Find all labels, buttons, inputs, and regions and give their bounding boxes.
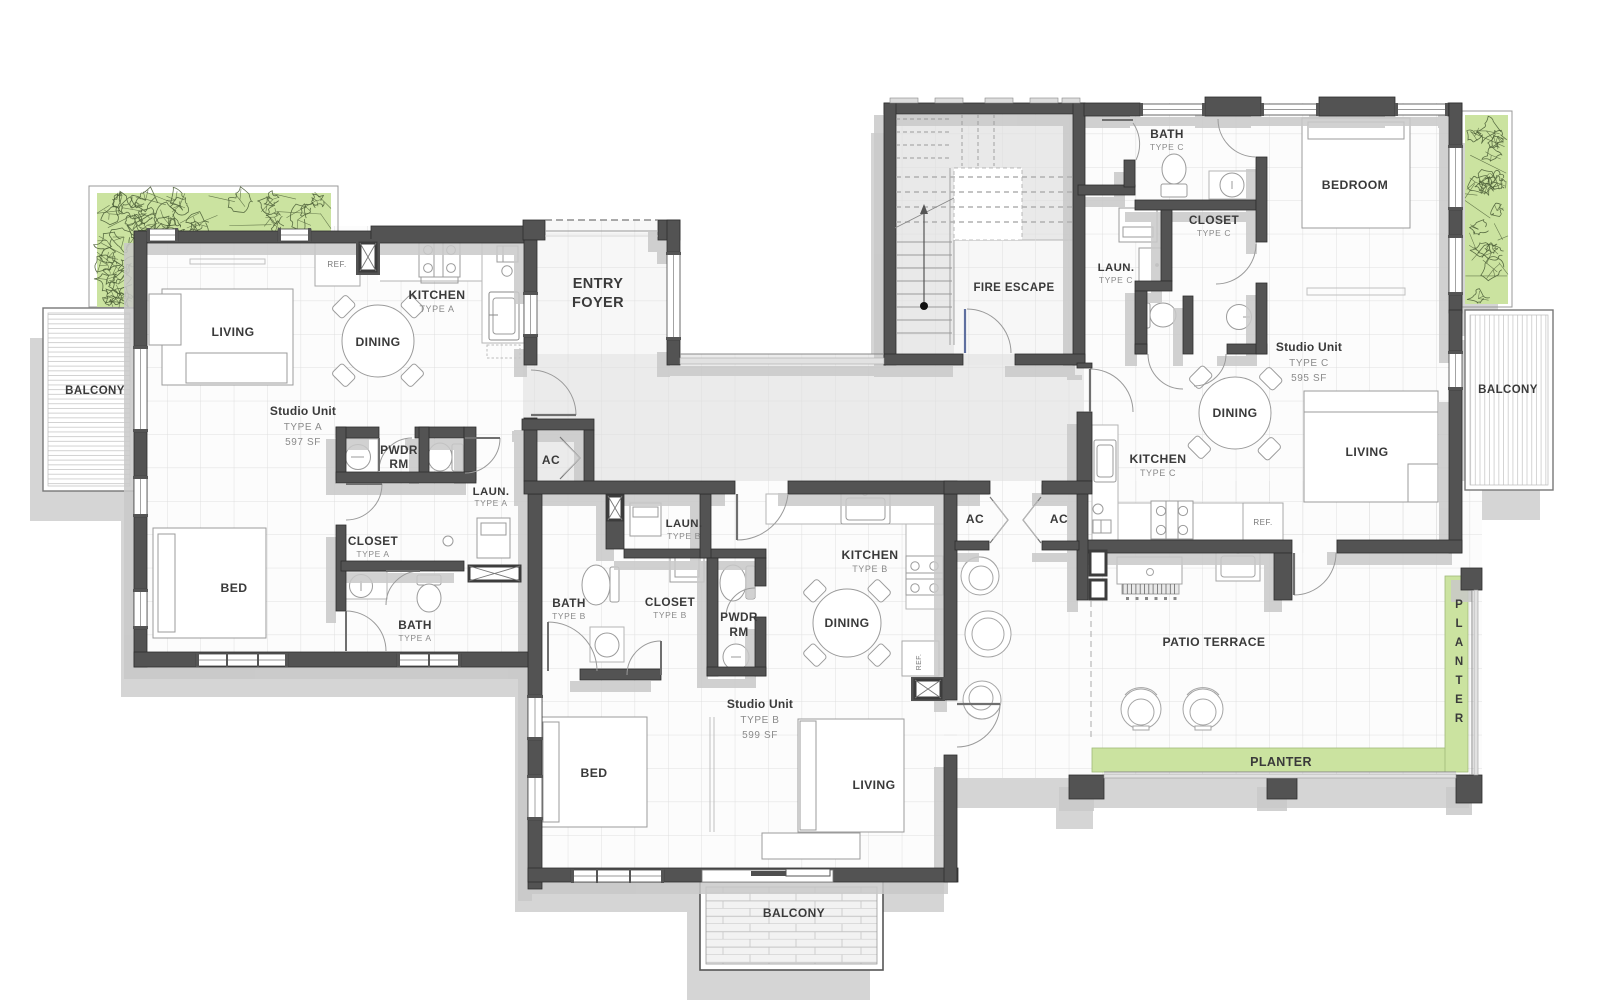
svg-text:PATIO TERRACE: PATIO TERRACE: [1163, 635, 1266, 649]
svg-text:PLANTER: PLANTER: [1250, 755, 1312, 769]
svg-text:TYPE C: TYPE C: [1197, 228, 1231, 238]
svg-text:599 SF: 599 SF: [742, 730, 778, 741]
svg-text:Studio Unit: Studio Unit: [1276, 340, 1342, 354]
svg-text:A: A: [1455, 637, 1463, 649]
svg-text:LIVING: LIVING: [1345, 445, 1388, 459]
svg-text:LIVING: LIVING: [852, 778, 895, 792]
svg-text:DINING: DINING: [1212, 406, 1257, 420]
svg-text:CLOSET: CLOSET: [1189, 213, 1240, 227]
svg-text:FOYER: FOYER: [572, 295, 624, 311]
svg-text:BATH: BATH: [1150, 127, 1184, 141]
svg-text:TYPE B: TYPE B: [552, 611, 586, 621]
svg-text:Studio Unit: Studio Unit: [270, 404, 336, 418]
svg-text:595 SF: 595 SF: [1291, 373, 1327, 384]
svg-text:AC: AC: [966, 512, 984, 526]
svg-text:BALCONY: BALCONY: [763, 906, 825, 920]
svg-text:DINING: DINING: [355, 335, 400, 349]
svg-text:N: N: [1455, 656, 1463, 668]
svg-text:REF.: REF.: [327, 260, 346, 269]
svg-text:TYPE B: TYPE B: [667, 531, 701, 541]
svg-text:BED: BED: [221, 581, 248, 595]
svg-text:CLOSET: CLOSET: [348, 534, 399, 548]
svg-text:R: R: [1455, 713, 1464, 725]
svg-text:AC: AC: [542, 453, 560, 467]
svg-text:LIVING: LIVING: [211, 325, 254, 339]
svg-text:TYPE A: TYPE A: [398, 633, 431, 643]
svg-text:ENTRY: ENTRY: [573, 276, 624, 292]
svg-text:E: E: [1455, 694, 1463, 706]
svg-text:597 SF: 597 SF: [285, 437, 321, 448]
svg-text:TYPE C: TYPE C: [1140, 468, 1176, 478]
svg-text:TYPE A: TYPE A: [419, 304, 454, 314]
svg-text:TYPE C: TYPE C: [1289, 358, 1329, 369]
svg-text:L: L: [1455, 618, 1462, 630]
svg-text:FIRE ESCAPE: FIRE ESCAPE: [973, 282, 1054, 294]
svg-text:AC: AC: [1050, 512, 1068, 526]
svg-text:LAUN.: LAUN.: [1098, 262, 1135, 274]
svg-text:KITCHEN: KITCHEN: [1130, 452, 1187, 466]
svg-text:BATH: BATH: [398, 618, 432, 632]
svg-text:TYPE B: TYPE B: [852, 564, 888, 574]
svg-text:KITCHEN: KITCHEN: [409, 288, 466, 302]
svg-text:PWDR: PWDR: [380, 443, 418, 457]
svg-text:REF.: REF.: [916, 654, 923, 671]
svg-text:LAUN.: LAUN.: [666, 518, 703, 530]
svg-text:KITCHEN: KITCHEN: [842, 548, 899, 562]
svg-text:PWDR: PWDR: [720, 610, 758, 624]
svg-text:DINING: DINING: [824, 616, 869, 630]
svg-text:BATH: BATH: [552, 596, 586, 610]
svg-text:BALCONY: BALCONY: [65, 385, 125, 397]
svg-text:BALCONY: BALCONY: [1478, 384, 1538, 396]
svg-text:TYPE C: TYPE C: [1099, 275, 1133, 285]
svg-text:TYPE C: TYPE C: [1150, 142, 1184, 152]
svg-text:BEDROOM: BEDROOM: [1322, 178, 1388, 192]
svg-text:T: T: [1455, 675, 1462, 687]
svg-text:TYPE A: TYPE A: [356, 549, 389, 559]
svg-text:P: P: [1455, 599, 1463, 611]
svg-text:LAUN.: LAUN.: [473, 486, 510, 498]
svg-text:TYPE A: TYPE A: [284, 422, 323, 433]
svg-text:REF.: REF.: [1253, 518, 1272, 527]
svg-text:TYPE B: TYPE B: [740, 715, 779, 726]
svg-text:Studio Unit: Studio Unit: [727, 697, 793, 711]
svg-text:RM: RM: [729, 625, 748, 639]
svg-text:RM: RM: [389, 457, 408, 471]
svg-text:TYPE A: TYPE A: [474, 498, 507, 508]
svg-text:CLOSET: CLOSET: [645, 595, 696, 609]
svg-text:TYPE B: TYPE B: [653, 610, 687, 620]
svg-text:BED: BED: [581, 766, 608, 780]
